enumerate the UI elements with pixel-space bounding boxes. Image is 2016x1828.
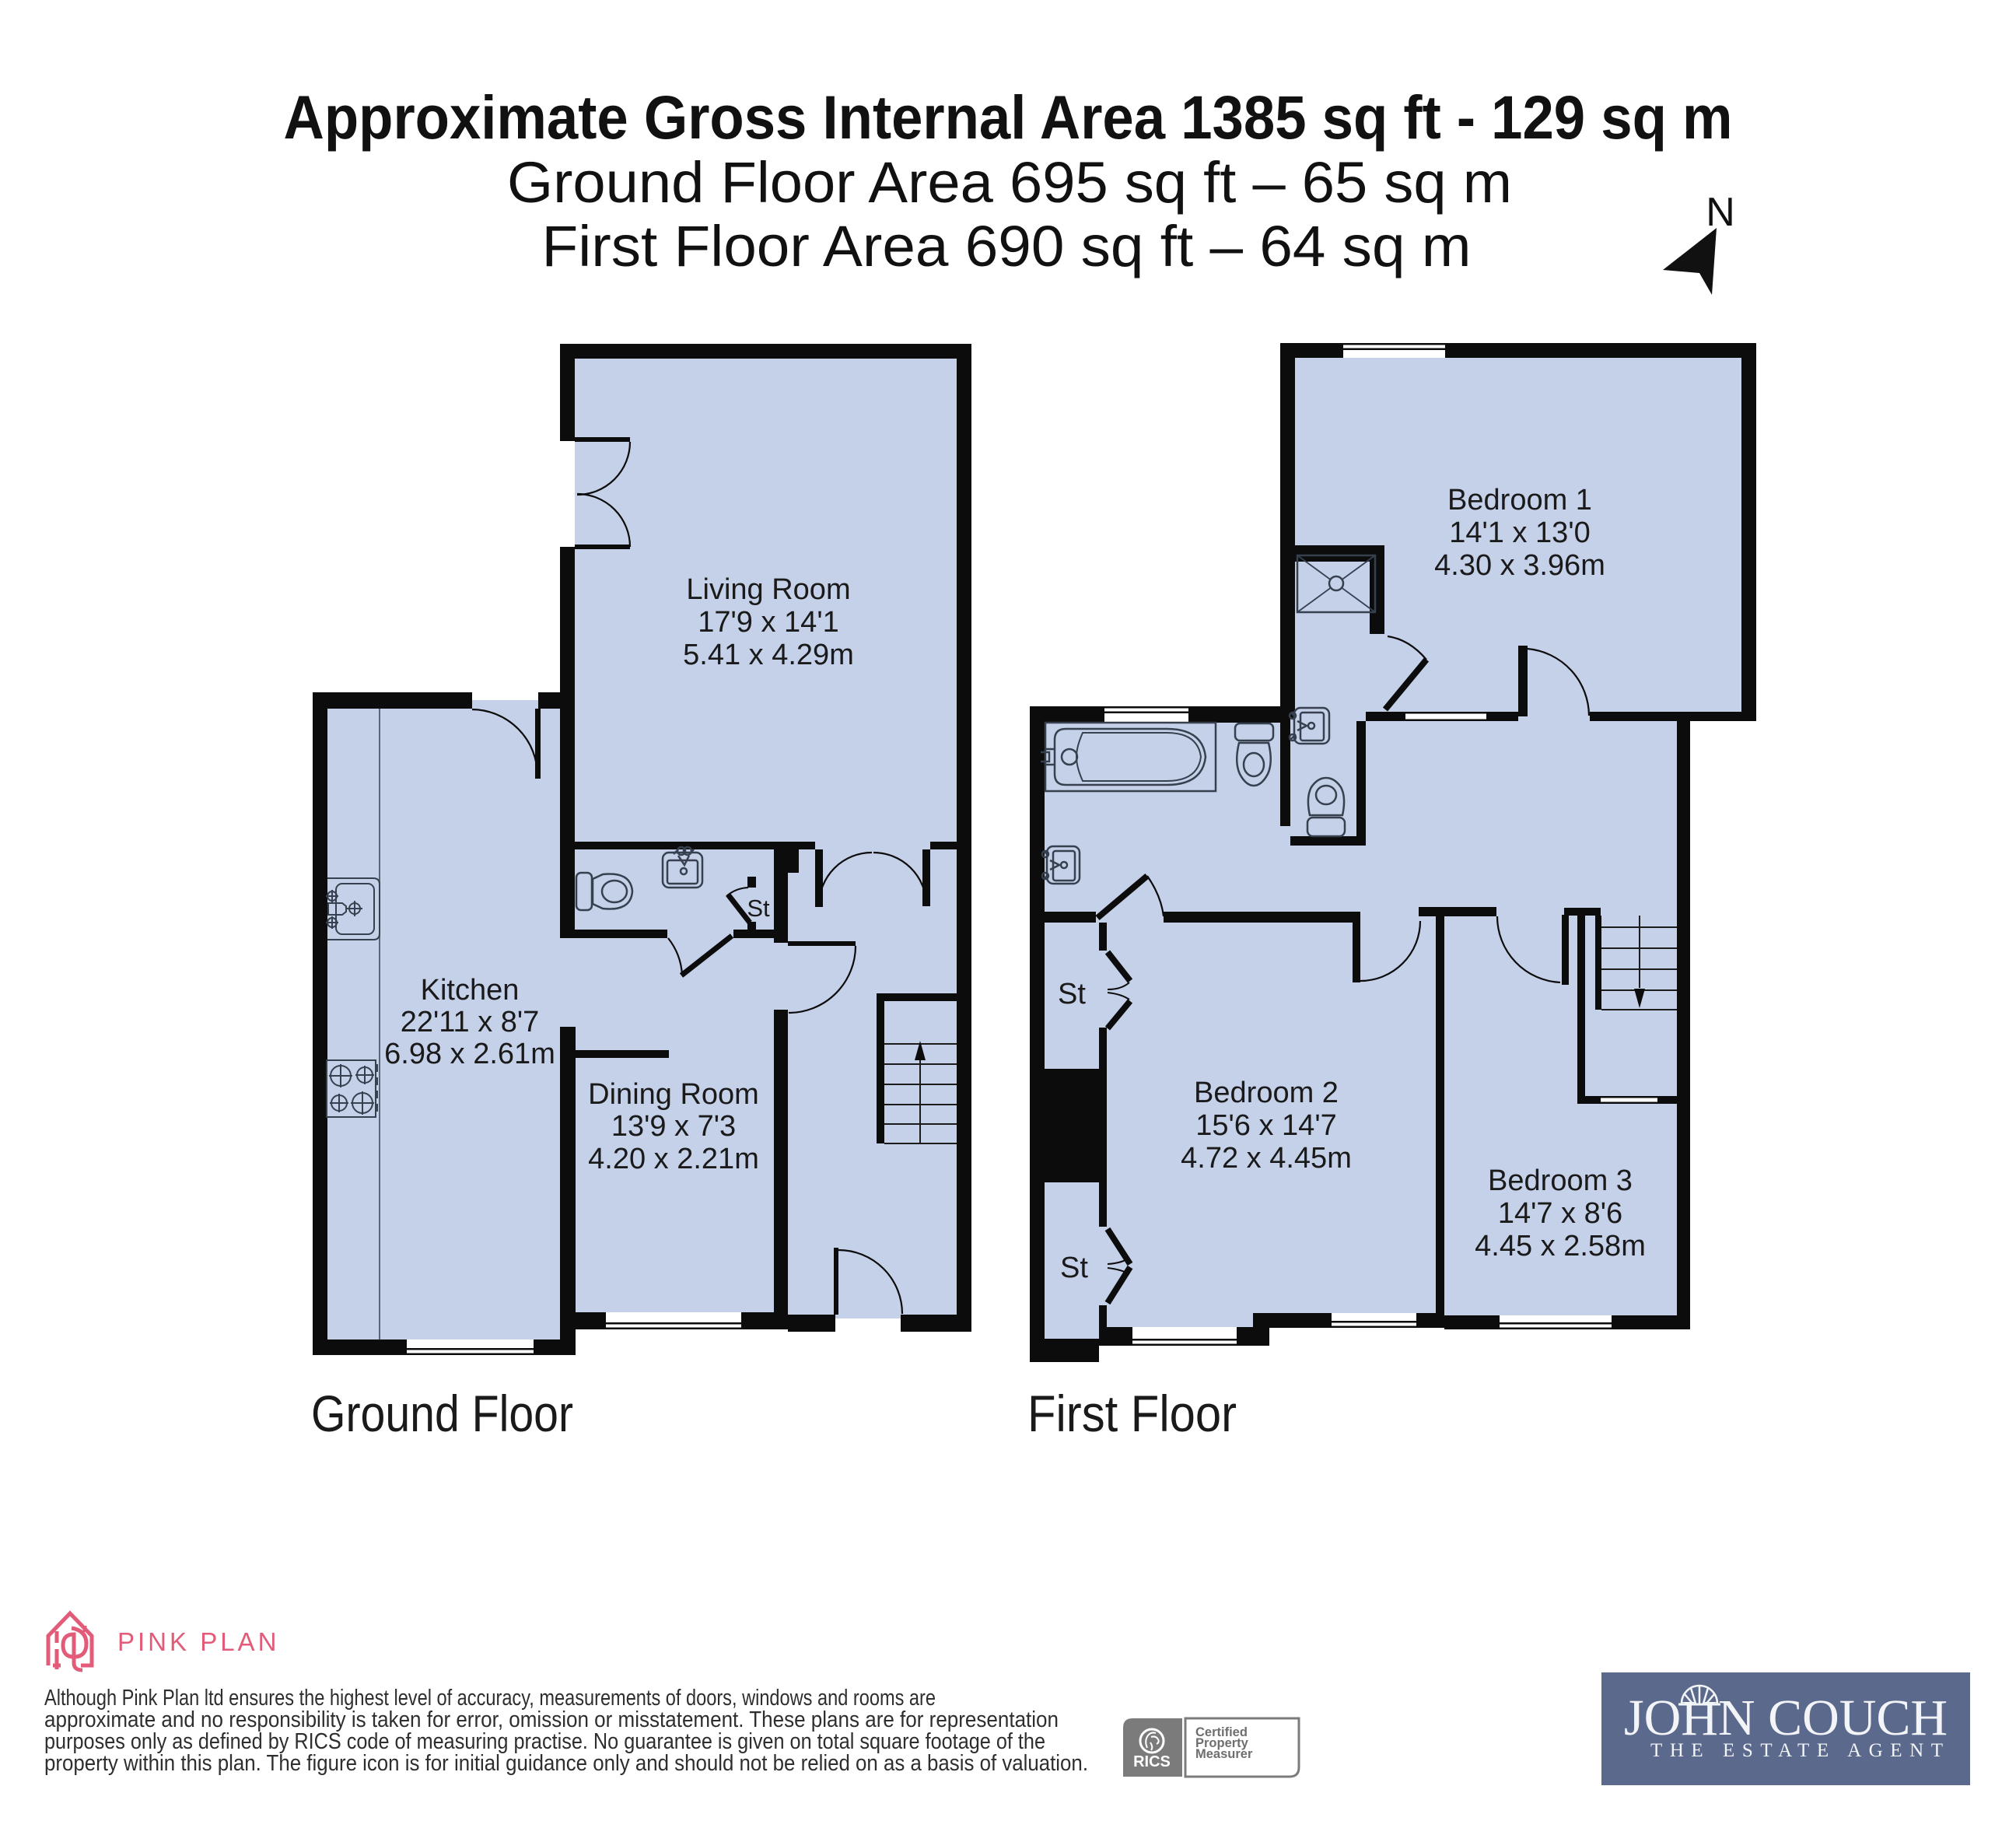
svg-text:Ground Floor Area 695 sq ft –: Ground Floor Area 695 sq ft – 65 sq m [507,150,1512,215]
svg-text:PINK PLAN: PINK PLAN [117,1627,279,1656]
svg-text:5.41 x 4.29m: 5.41 x 4.29m [683,639,854,671]
svg-text:4.45 x 2.58m: 4.45 x 2.58m [1475,1230,1646,1262]
svg-text:St: St [747,895,770,922]
svg-text:Bedroom 1: Bedroom 1 [1447,484,1592,517]
svg-text:THE ESTATE AGENT: THE ESTATE AGENT [1650,1740,1943,1761]
svg-text:14'1 x 13'0: 14'1 x 13'0 [1449,517,1590,549]
svg-text:4.20 x 2.21m: 4.20 x 2.21m [588,1143,759,1175]
svg-text:St: St [1058,978,1086,1010]
svg-text:First Floor Area 690 sq ft – 6: First Floor Area 690 sq ft – 64 sq m [542,214,1472,278]
svg-text:Living Room: Living Room [686,573,850,606]
svg-text:Kitchen: Kitchen [421,974,520,1007]
svg-text:N: N [1706,190,1735,235]
svg-text:Bedroom 2: Bedroom 2 [1194,1077,1339,1109]
svg-text:22'11 x 8'7: 22'11 x 8'7 [401,1006,540,1038]
svg-text:RICS: RICS [1133,1753,1171,1770]
svg-text:4.72 x 4.45m: 4.72 x 4.45m [1181,1142,1352,1175]
svg-text:St: St [1060,1252,1088,1284]
svg-text:17'9 x 14'1: 17'9 x 14'1 [698,606,838,639]
svg-text:First Floor: First Floor [1027,1385,1237,1442]
svg-text:14'7 x 8'6: 14'7 x 8'6 [1498,1197,1622,1230]
svg-text:Ground Floor: Ground Floor [311,1385,573,1442]
svg-text:4.30 x 3.96m: 4.30 x 3.96m [1434,549,1605,582]
svg-text:property within this plan. The: property within this plan. The figure ic… [44,1751,1088,1776]
svg-text:15'6 x 14'7: 15'6 x 14'7 [1195,1109,1336,1142]
svg-text:Measurer: Measurer [1195,1747,1253,1761]
svg-text:JOHN COUCH: JOHN COUCH [1624,1690,1948,1746]
svg-text:Bedroom 3: Bedroom 3 [1488,1164,1633,1197]
svg-text:Approximate Gross Internal Are: Approximate Gross Internal Area 1385 sq … [284,82,1733,152]
svg-text:6.98 x 2.61m: 6.98 x 2.61m [384,1038,555,1070]
svg-text:13'9 x 7'3: 13'9 x 7'3 [611,1110,736,1143]
svg-text:Dining Room: Dining Room [588,1078,759,1111]
